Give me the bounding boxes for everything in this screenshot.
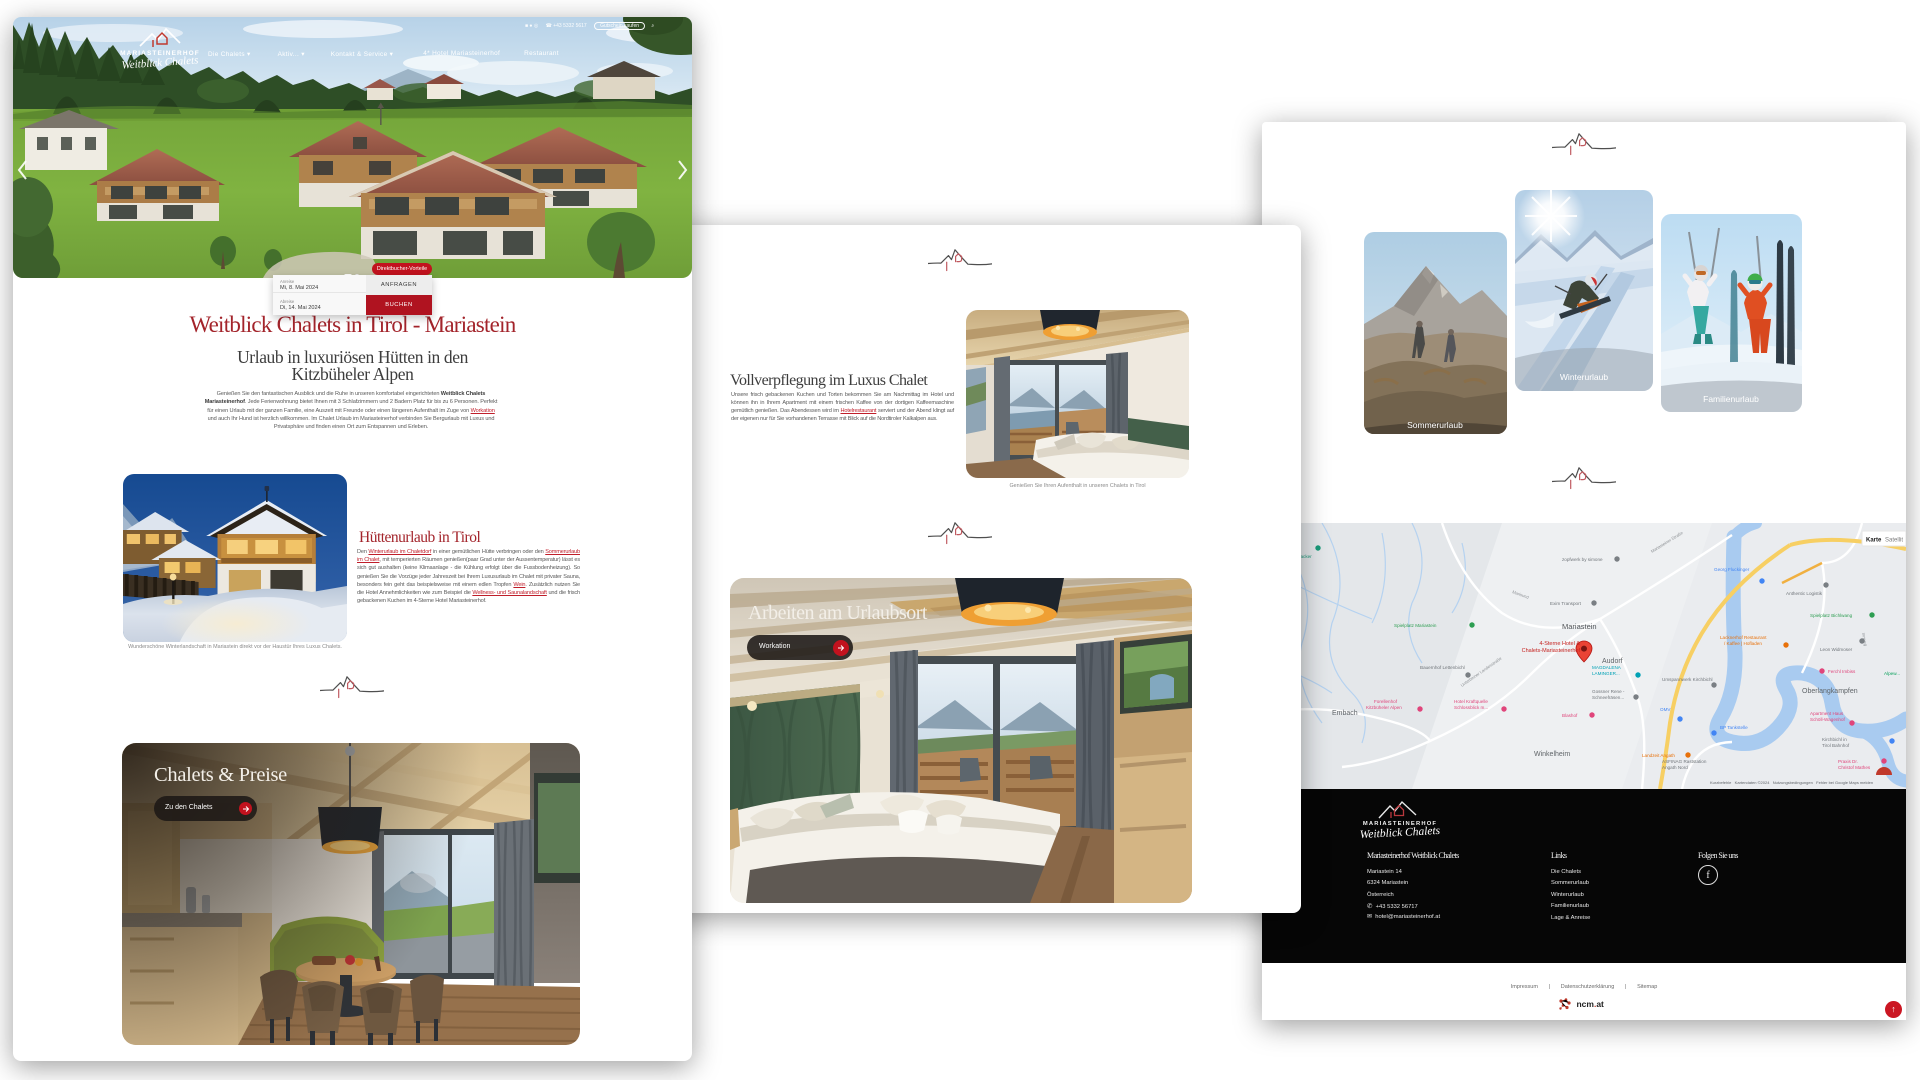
svg-text:Alpew...: Alpew... <box>1884 671 1900 676</box>
svg-text:Forellenhof: Forellenhof <box>1374 699 1398 704</box>
svg-text:ASFINAG Raststation: ASFINAG Raststation <box>1662 759 1707 764</box>
svg-text:Bauernhof Lettenbichl: Bauernhof Lettenbichl <box>1420 665 1465 670</box>
svg-text:Praxis Dr.: Praxis Dr. <box>1838 759 1858 764</box>
svg-text:Blashof: Blashof <box>1562 713 1578 718</box>
svg-text:Hotel Kraftquelle: Hotel Kraftquelle <box>1454 699 1488 704</box>
svg-text:Oberlangkampfen: Oberlangkampfen <box>1802 688 1858 695</box>
svg-text:Anthentic Logistik: Anthentic Logistik <box>1786 591 1823 596</box>
svg-text:Lacknerhof Restaurant: Lacknerhof Restaurant <box>1720 635 1767 640</box>
svg-text:Christof Mathes: Christof Mathes <box>1838 765 1871 770</box>
svg-text:Kurzbefehle Kartendaten ©202: Kurzbefehle Kartendaten ©2024 Nutzungsbe… <box>1710 780 1873 785</box>
svg-text:Angath Nord: Angath Nord <box>1662 765 1688 770</box>
svg-text:Winterurlaub: Winterurlaub <box>1560 372 1608 382</box>
svg-text:4-Sterne Hotel &: 4-Sterne Hotel & <box>1539 641 1580 647</box>
svg-text:Chalets-Mariasteinerhof: Chalets-Mariasteinerhof <box>1522 648 1581 654</box>
svg-text:Kirchbichl in: Kirchbichl in <box>1822 737 1847 742</box>
svg-text:LAMINGER...: LAMINGER... <box>1592 671 1620 676</box>
svg-text:Embach: Embach <box>1332 710 1358 717</box>
svg-text:Satellit: Satellit <box>1885 538 1903 544</box>
svg-text:zopfwerk by simone: zopfwerk by simone <box>1562 557 1603 562</box>
svg-text:Audorf: Audorf <box>1602 658 1623 665</box>
svg-text:BP Tankstelle: BP Tankstelle <box>1720 725 1748 730</box>
svg-text:/ Kaffee | Hofladen: / Kaffee | Hofladen <box>1724 641 1762 646</box>
svg-text:Georg Fluckinger: Georg Fluckinger <box>1714 567 1750 572</box>
svg-text:MAGDALENA: MAGDALENA <box>1592 665 1622 670</box>
svg-text:Tirol Bahnhof: Tirol Bahnhof <box>1822 743 1850 748</box>
svg-text:Leon Widmoser: Leon Widmoser <box>1820 647 1853 652</box>
svg-text:Familienurlaub: Familienurlaub <box>1703 394 1759 404</box>
svg-text:Mariastein: Mariastein <box>1562 622 1597 631</box>
svg-text:Kitzbüheler Alpen: Kitzbüheler Alpen <box>1366 705 1402 710</box>
svg-text:Schlossblick m...: Schlossblick m... <box>1454 705 1488 710</box>
svg-text:Schneefräsen...: Schneefräsen... <box>1592 695 1624 700</box>
svg-text:Spielplatz Mariastein: Spielplatz Mariastein <box>1394 623 1437 628</box>
svg-text:Ferchl Imbiss: Ferchl Imbiss <box>1828 669 1856 674</box>
svg-text:Umspannwerk Kirchbichl: Umspannwerk Kirchbichl <box>1662 677 1713 682</box>
svg-text:Karte: Karte <box>1866 538 1882 544</box>
svg-text:Winkelheim: Winkelheim <box>1534 751 1570 758</box>
svg-text:Spielplatz Bichlwang: Spielplatz Bichlwang <box>1810 613 1853 618</box>
svg-text:Exim Transport: Exim Transport <box>1550 601 1582 606</box>
svg-text:Landzeit Angath: Landzeit Angath <box>1642 753 1675 758</box>
svg-text:OMV: OMV <box>1660 707 1671 712</box>
svg-text:Sommerurlaub: Sommerurlaub <box>1407 420 1463 430</box>
svg-text:Gossner Rene -: Gossner Rene - <box>1592 689 1625 694</box>
svg-text:Apartment Haus: Apartment Haus <box>1810 711 1844 716</box>
svg-text:Schöll-Wagenhof: Schöll-Wagenhof <box>1810 717 1846 722</box>
